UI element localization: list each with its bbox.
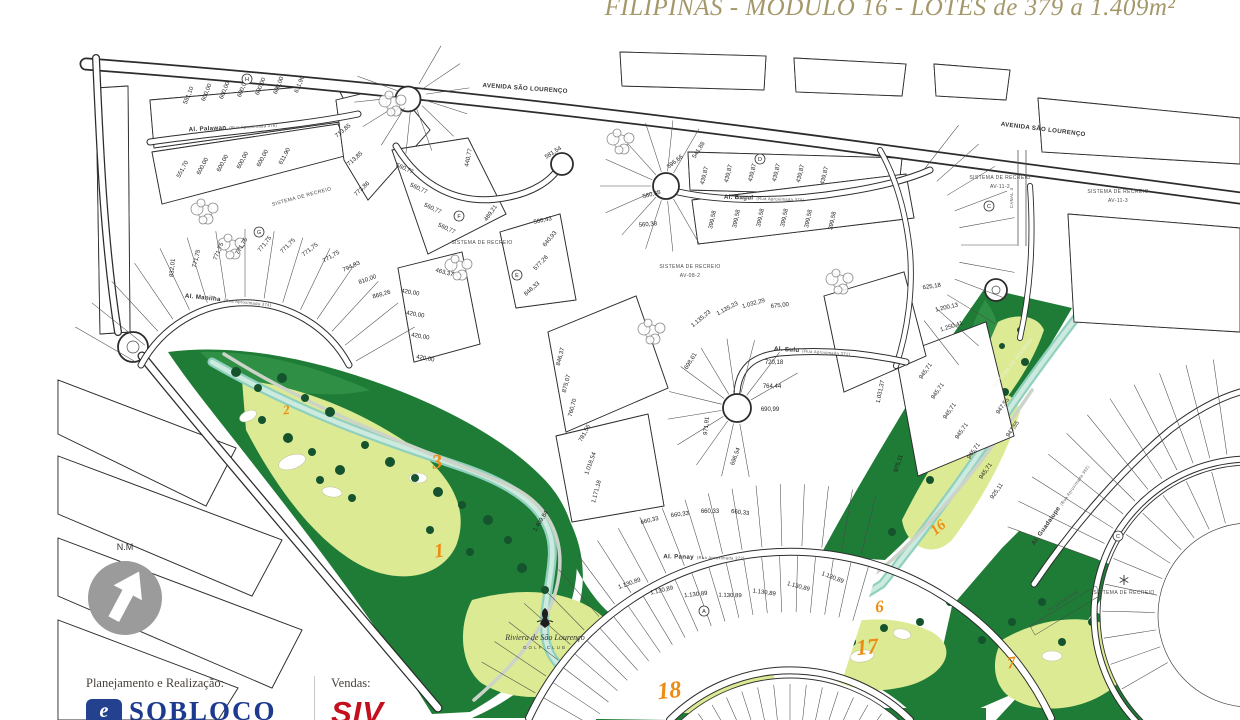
golf-tree-icon bbox=[283, 433, 293, 443]
recreio-label: SISTEMA DE RECREIO bbox=[271, 186, 332, 208]
lot-boundary-line bbox=[424, 64, 461, 89]
golf-tree-icon bbox=[926, 476, 934, 484]
lot-area-label: 1.135,23 bbox=[716, 301, 740, 318]
lot-boundary-line bbox=[668, 201, 673, 252]
golf-tree-icon bbox=[483, 515, 493, 525]
lot-area-label: 1.200,13 bbox=[935, 302, 960, 313]
compass-label: N.M bbox=[117, 542, 134, 552]
lot-boundary-line bbox=[669, 392, 722, 405]
lot-boundary-line bbox=[802, 484, 805, 546]
lot-area-label: 771,75 bbox=[301, 242, 320, 258]
lot-area-label: 764,44 bbox=[763, 384, 782, 390]
golf-tree-icon bbox=[1021, 358, 1029, 366]
lot-boundary-line bbox=[696, 421, 727, 465]
recreio-code-av-11-3: AV-11-3 bbox=[1108, 198, 1128, 204]
golf-tree-icon bbox=[361, 441, 369, 449]
lot-area-label: 690,99 bbox=[761, 407, 780, 413]
golf-tree-icon bbox=[433, 487, 443, 497]
lot-boundary-line bbox=[959, 262, 1014, 272]
golf-club-name: Riviera de São Lourenço bbox=[504, 633, 584, 642]
lot-boundary-line bbox=[135, 263, 173, 319]
golf-tree-icon bbox=[426, 526, 434, 534]
golf-tree-icon bbox=[231, 367, 241, 377]
golf-tree-icon bbox=[348, 494, 356, 502]
lot-boundary-line bbox=[780, 484, 782, 546]
lot-boundary-line bbox=[332, 281, 378, 331]
lot-hatch-pattern bbox=[934, 64, 1010, 100]
golf-tree-icon bbox=[466, 548, 474, 556]
recreio-code-av-11-2: AV-11-2 bbox=[990, 184, 1010, 190]
marker-a: A bbox=[699, 606, 709, 616]
lot-boundary-line bbox=[955, 191, 1007, 211]
street-panay-name: Al. Panay bbox=[663, 553, 694, 561]
sobloco-icon: e bbox=[86, 699, 122, 720]
golf-tree-icon bbox=[385, 457, 395, 467]
lot-area-label: 675,00 bbox=[770, 302, 790, 310]
lot-area-label: 1.031,37 bbox=[876, 379, 887, 404]
golf-tree-icon bbox=[1008, 618, 1016, 626]
lot-boundary-line bbox=[822, 486, 829, 548]
avenue-label: AVENIDA SÃO LOURENÇO bbox=[482, 82, 568, 95]
sobloco-wordmark: SOBLOCO bbox=[129, 696, 277, 720]
golf-tree-icon bbox=[316, 476, 324, 484]
golf-tree-icon bbox=[517, 563, 527, 573]
lot-hatch-pattern bbox=[794, 58, 906, 96]
lot-boundary-line bbox=[317, 263, 355, 319]
planning-column: Planejamento e Realização: e SOBLOCO bbox=[86, 676, 298, 720]
lot-boundary-line bbox=[678, 416, 724, 445]
golf-club-subtitle: GOLF CLUB bbox=[523, 645, 567, 650]
marker-a-letter: A bbox=[702, 609, 706, 615]
lot-hatch-pattern bbox=[620, 52, 766, 90]
lot-area-label: 810,00 bbox=[358, 274, 378, 286]
lot-boundary-line bbox=[668, 411, 721, 420]
lot-boundary-line bbox=[640, 517, 666, 573]
lot-area-label: 1.032,29 bbox=[742, 298, 767, 310]
lot-area-label: 771,75 bbox=[192, 248, 202, 268]
lot-area-label: 1.130,89 bbox=[718, 593, 742, 599]
lot-boundary-line bbox=[618, 528, 648, 582]
golf-tree-icon bbox=[254, 384, 262, 392]
lot-boundary-line bbox=[606, 159, 653, 180]
lot-boundary-line bbox=[681, 367, 725, 399]
lot-area-label: 660,33 bbox=[640, 516, 660, 526]
lot-area-label: 771,75 bbox=[322, 250, 341, 265]
lot-boundary-line bbox=[646, 123, 662, 172]
lot-area-label: 771,75 bbox=[280, 237, 298, 255]
lot-boundary-line bbox=[622, 197, 656, 235]
recreio-label: SISTEMA DE RECREIO bbox=[1093, 590, 1154, 596]
lot-area-label: 1.130,89 bbox=[618, 577, 643, 591]
marker-d: D bbox=[755, 154, 765, 164]
lot-boundary-line bbox=[160, 248, 190, 309]
hole-18: 18 bbox=[656, 677, 683, 705]
canal-label: CANAL 4 bbox=[1009, 188, 1014, 209]
lot-area-label: 560,38 bbox=[639, 221, 658, 229]
lot-area-label: 698,61 bbox=[684, 352, 699, 371]
golf-tree-icon bbox=[888, 528, 896, 536]
lot-area-label: 771,75 bbox=[213, 241, 226, 261]
golf-tree-icon bbox=[458, 501, 466, 509]
lot-boundary-line bbox=[356, 327, 415, 361]
marker-c2-letter: C bbox=[1116, 534, 1120, 540]
siv-wordmark: SIV bbox=[331, 695, 384, 720]
marker-g: G bbox=[254, 227, 264, 237]
recreio-code-av-08-2: AV-08-2 bbox=[680, 273, 701, 279]
street-bagul-name: Al. Bagul bbox=[724, 194, 754, 202]
lot-area-label: 720,18 bbox=[765, 360, 784, 366]
golf-tree-icon bbox=[308, 448, 316, 456]
marker-h: H bbox=[242, 74, 252, 84]
subdivision-map: 551,10600,00600,00600,00600,00600,00611,… bbox=[0, 0, 1240, 720]
marker-c-letter: C bbox=[987, 204, 991, 210]
recreio-label: SISTEMA DE RECREIO bbox=[969, 175, 1030, 181]
footer: Planejamento e Realização: e SOBLOCO Ven… bbox=[86, 676, 384, 720]
lot-area-label: 794,93 bbox=[342, 260, 362, 273]
marker-c: C bbox=[984, 201, 994, 211]
golf-tree-icon bbox=[258, 416, 266, 424]
lot-boundary-line bbox=[756, 486, 762, 548]
lot-hatch-pattern bbox=[548, 296, 668, 432]
lot-area-label: 660,33 bbox=[701, 509, 720, 515]
golf-tree-icon bbox=[411, 474, 419, 482]
marker-e-letter: E bbox=[515, 273, 519, 279]
planning-label: Planejamento e Realização: bbox=[86, 676, 298, 691]
masterplan-poster: 551,10600,00600,00600,00600,00600,00611,… bbox=[0, 0, 1240, 720]
lot-boundary-line bbox=[345, 303, 398, 345]
lot-boundary-line bbox=[419, 46, 441, 84]
golf-tree-icon bbox=[277, 373, 287, 383]
golf-tree-icon bbox=[301, 394, 309, 402]
lot-boundary-line bbox=[732, 489, 742, 550]
lot-area-label: 660,33 bbox=[670, 511, 690, 519]
golf-tree-icon bbox=[325, 407, 335, 417]
sales-label: Vendas: bbox=[331, 676, 384, 691]
marker-c2: C bbox=[1113, 531, 1123, 541]
recreio-label: SISTEMA DE RECREIO bbox=[451, 240, 512, 246]
lot-area-label: 696,54 bbox=[730, 446, 742, 466]
lot-hatch-pattern bbox=[1068, 214, 1240, 332]
lot-area-label: 971,91 bbox=[703, 416, 711, 436]
lot-area-label: 660,33 bbox=[731, 509, 751, 517]
marker-d-letter: D bbox=[758, 157, 762, 163]
lot-area-label: 832,01 bbox=[169, 258, 177, 277]
recreio-label: SISTEMA DE RECREIO bbox=[1087, 189, 1148, 195]
lot-boundary-line bbox=[959, 218, 1014, 228]
golf-tree-icon bbox=[335, 465, 345, 475]
golf-tree-icon bbox=[1038, 598, 1046, 606]
marker-g-letter: G bbox=[257, 230, 261, 236]
lot-area-label: 868,26 bbox=[372, 289, 392, 300]
lot-boundary-line bbox=[708, 494, 722, 554]
marker-h-letter: H bbox=[245, 77, 249, 83]
lot-boundary-line bbox=[701, 348, 729, 394]
hole-17: 17 bbox=[855, 633, 880, 660]
sales-column: Vendas: SIV bbox=[331, 676, 384, 720]
golf-tree-icon bbox=[916, 618, 924, 626]
street-panay-note: (Rua Aproximada 372) bbox=[697, 555, 745, 561]
golf-tree-icon bbox=[504, 536, 512, 544]
hole-6: 6 bbox=[874, 597, 885, 617]
footer-divider bbox=[314, 676, 315, 720]
sobloco-logo: e SOBLOCO bbox=[86, 696, 298, 720]
marker-e: E bbox=[512, 270, 522, 280]
lot-area-label: 560,38 bbox=[642, 190, 662, 201]
lot-boundary-line bbox=[727, 339, 735, 393]
golf-tree-icon bbox=[880, 624, 888, 632]
marker-f: F bbox=[454, 211, 464, 221]
street-manilha-name: Al. Manilha bbox=[185, 292, 222, 303]
lot-area-label: 925,11 bbox=[990, 482, 1006, 501]
lot-hatch-pattern bbox=[556, 414, 664, 522]
golf-tree-icon bbox=[1058, 638, 1066, 646]
map-title: FILIPINAS - MODULO 16 - LOTES de 379 a 1… bbox=[540, 0, 1240, 22]
golf-tree-icon bbox=[978, 636, 986, 644]
recreio-label: SISTEMA DE RECREIO bbox=[659, 264, 720, 270]
lot-boundary-line bbox=[722, 424, 734, 477]
golf-tree-icon bbox=[999, 343, 1005, 349]
lot-area-label: 625,18 bbox=[922, 283, 942, 292]
lot-area-label: 1.135,23 bbox=[690, 309, 712, 329]
